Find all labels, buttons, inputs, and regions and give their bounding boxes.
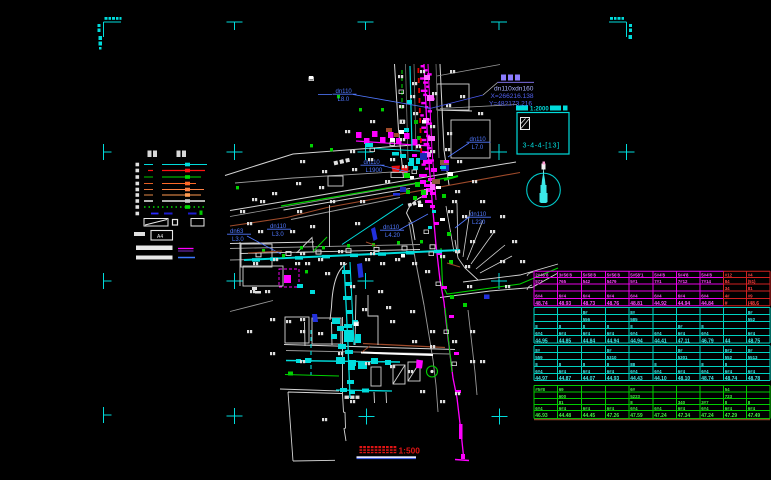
svg-text:559: 559 <box>535 355 543 360</box>
svg-text:L8.0: L8.0 <box>338 97 350 103</box>
svg-text:48.73: 48.73 <box>583 301 596 307</box>
svg-text:600: 600 <box>559 394 567 399</box>
svg-text:5223: 5223 <box>630 394 640 399</box>
svg-text:dn110xdn160: dn110xdn160 <box>494 86 534 93</box>
svg-text:L3.0: L3.0 <box>272 232 284 238</box>
svg-text:47.49: 47.49 <box>748 413 761 419</box>
svg-text:47.11: 47.11 <box>678 338 690 344</box>
svg-text:6#4: 6#4 <box>583 331 591 336</box>
svg-text:47.29: 47.29 <box>725 413 738 419</box>
svg-text:5513: 5513 <box>748 355 758 360</box>
svg-text:5#58'1: 5#58'1 <box>630 273 644 278</box>
svg-text:6#: 6# <box>630 387 635 392</box>
svg-text:6#4: 6#4 <box>535 331 543 336</box>
svg-text:2#46'8: 2#46'8 <box>535 273 549 278</box>
svg-text:6#4: 6#4 <box>607 294 615 299</box>
svg-text:765: 765 <box>559 279 567 284</box>
svg-text:6#4: 6#4 <box>701 406 709 411</box>
svg-text:6#4: 6#4 <box>607 406 615 411</box>
svg-text:48.74: 48.74 <box>725 376 738 382</box>
svg-text:6#4: 6#4 <box>701 294 709 299</box>
svg-text:6#4: 6#4 <box>630 369 638 374</box>
svg-text:46.79: 46.79 <box>701 338 714 344</box>
svg-text:L7.0: L7.0 <box>472 145 484 151</box>
svg-text:8#: 8# <box>678 348 683 353</box>
svg-text:552: 552 <box>748 317 756 322</box>
svg-text:3-4-4-[13]: 3-4-4-[13] <box>523 141 560 150</box>
svg-text:#: # <box>725 301 728 307</box>
svg-text:1:2000: 1:2000 <box>530 107 549 113</box>
svg-text:577: 577 <box>535 279 543 284</box>
svg-text:6#4: 6#4 <box>630 331 638 336</box>
svg-text:#5#8: #5#8 <box>535 387 545 392</box>
svg-text:48.78: 48.78 <box>748 376 761 382</box>
svg-text:8#: 8# <box>678 324 683 329</box>
svg-text:47.24: 47.24 <box>701 413 714 419</box>
svg-text:6#4: 6#4 <box>678 331 686 336</box>
svg-text:5#56'8: 5#56'8 <box>607 273 621 278</box>
svg-text:6#4: 6#4 <box>535 406 543 411</box>
svg-text:6#4: 6#4 <box>583 369 591 374</box>
svg-text:54: 54 <box>725 387 730 392</box>
svg-text:69: 69 <box>559 387 564 392</box>
svg-text:88: 88 <box>630 362 635 367</box>
svg-text:5#4'8: 5#4'8 <box>678 273 689 278</box>
svg-text:6#4: 6#4 <box>559 331 567 336</box>
svg-text:585: 585 <box>630 317 638 322</box>
svg-text:5#58'8: 5#58'8 <box>583 273 597 278</box>
svg-text:6#4: 6#4 <box>583 406 591 411</box>
svg-text:48.76: 48.76 <box>607 301 620 307</box>
svg-text:6#4: 6#4 <box>725 406 733 411</box>
svg-text:47.24: 47.24 <box>654 413 667 419</box>
svg-text:6#4: 6#4 <box>725 369 733 374</box>
svg-text:8#: 8# <box>583 310 588 315</box>
svg-text:48.10: 48.10 <box>678 376 691 382</box>
svg-text:47.26: 47.26 <box>607 413 620 419</box>
svg-text:44.97: 44.97 <box>535 376 548 382</box>
svg-text:48.75: 48.75 <box>748 338 761 344</box>
svg-text:46.93: 46.93 <box>535 413 548 419</box>
svg-text:6#4: 6#4 <box>678 294 686 299</box>
svg-text:6#4: 6#4 <box>701 331 709 336</box>
svg-text:6#4: 6#4 <box>654 406 662 411</box>
svg-text:44.92: 44.92 <box>654 301 667 307</box>
svg-text:7#14: 7#14 <box>701 279 711 284</box>
svg-text:6#4: 6#4 <box>583 294 591 299</box>
svg-text:8#: 8# <box>748 310 753 315</box>
svg-text:6#4: 6#4 <box>535 294 543 299</box>
svg-text:340: 340 <box>678 400 686 405</box>
svg-text:8#: 8# <box>630 310 635 315</box>
svg-text:48.93: 48.93 <box>559 301 572 307</box>
svg-text:#12: #12 <box>725 273 733 278</box>
svg-text:44.84: 44.84 <box>583 338 596 344</box>
svg-text:#4: #4 <box>748 273 753 278</box>
svg-text:8#: 8# <box>748 348 753 353</box>
svg-text:L3.0: L3.0 <box>232 237 244 243</box>
svg-text:723: 723 <box>725 394 733 399</box>
svg-text:6#4: 6#4 <box>654 294 662 299</box>
svg-text:44.94: 44.94 <box>607 338 620 344</box>
svg-text:A4: A4 <box>157 234 163 240</box>
svg-text:5#4'8: 5#4'8 <box>701 273 712 278</box>
svg-text:48.74: 48.74 <box>701 376 714 382</box>
svg-text:4#: 4# <box>725 294 730 299</box>
svg-text:5#1: 5#1 <box>630 279 638 284</box>
svg-text:81: 81 <box>748 286 753 291</box>
svg-text:3#7: 3#7 <box>701 400 709 405</box>
svg-text:44: 44 <box>725 338 731 344</box>
svg-text:44.45: 44.45 <box>583 413 596 419</box>
svg-text:6#4: 6#4 <box>678 369 686 374</box>
svg-text:6#4: 6#4 <box>701 369 709 374</box>
svg-text:44.41: 44.41 <box>654 338 667 344</box>
svg-text:48.74: 48.74 <box>535 301 548 307</box>
svg-text:44.94: 44.94 <box>630 338 643 344</box>
svg-text:48.81: 48.81 <box>630 301 643 307</box>
svg-text:6#4: 6#4 <box>607 331 615 336</box>
svg-text:8#: 8# <box>535 348 540 353</box>
svg-text:84: 84 <box>725 279 730 284</box>
svg-text:7#12: 7#12 <box>678 279 688 284</box>
svg-text:(48.6: (48.6 <box>748 301 760 307</box>
svg-text:542: 542 <box>583 279 591 284</box>
svg-text:34: 34 <box>725 286 730 291</box>
svg-text:44.48: 44.48 <box>559 413 572 419</box>
svg-text:44.43: 44.43 <box>630 376 643 382</box>
svg-text:6#4: 6#4 <box>654 369 662 374</box>
svg-text:5310: 5310 <box>607 355 617 360</box>
svg-text:47.34: 47.34 <box>678 413 691 419</box>
svg-text:6#4: 6#4 <box>748 369 756 374</box>
svg-text:44.95: 44.95 <box>535 338 548 344</box>
svg-text:47.59: 47.59 <box>630 413 643 419</box>
svg-text:44.84: 44.84 <box>701 301 714 307</box>
svg-text:8#: 8# <box>607 348 612 353</box>
svg-text:(51): (51) <box>748 279 756 284</box>
svg-text:6#4: 6#4 <box>559 294 567 299</box>
svg-text:81: 81 <box>559 400 564 405</box>
svg-text:1:500: 1:500 <box>399 446 421 456</box>
svg-text:3#56'8: 3#56'8 <box>559 273 573 278</box>
svg-text:6#4: 6#4 <box>559 369 567 374</box>
svg-text:552: 552 <box>725 355 733 360</box>
svg-text:6#4: 6#4 <box>654 331 662 336</box>
svg-text:6#4: 6#4 <box>678 406 686 411</box>
svg-text:#9: #9 <box>748 294 753 299</box>
svg-text:6#4: 6#4 <box>748 331 756 336</box>
svg-text:5479: 5479 <box>607 279 617 284</box>
svg-text:6#4: 6#4 <box>630 406 638 411</box>
svg-text:5301: 5301 <box>678 355 688 360</box>
svg-text:L220: L220 <box>472 220 486 226</box>
svg-text:6#4: 6#4 <box>607 369 615 374</box>
svg-text:44.07: 44.07 <box>583 376 596 382</box>
svg-text:6#4: 6#4 <box>535 369 543 374</box>
svg-text:6#4: 6#4 <box>748 406 756 411</box>
svg-text:44.94: 44.94 <box>678 301 691 307</box>
svg-text:556: 556 <box>583 317 591 322</box>
svg-text:L4.20: L4.20 <box>385 233 401 239</box>
svg-text:8#2: 8#2 <box>725 348 733 353</box>
svg-text:6#4: 6#4 <box>559 406 567 411</box>
svg-text:44.85: 44.85 <box>559 338 572 344</box>
svg-text:L1900: L1900 <box>366 168 383 174</box>
svg-text:6#4: 6#4 <box>630 294 638 299</box>
svg-text:X=266216.138: X=266216.138 <box>491 93 534 100</box>
svg-text:5#4'8: 5#4'8 <box>654 273 665 278</box>
svg-text:44.93: 44.93 <box>607 376 620 382</box>
svg-text:7#1: 7#1 <box>654 279 662 284</box>
svg-text:44.87: 44.87 <box>559 376 572 382</box>
svg-text:44.10: 44.10 <box>654 376 667 382</box>
